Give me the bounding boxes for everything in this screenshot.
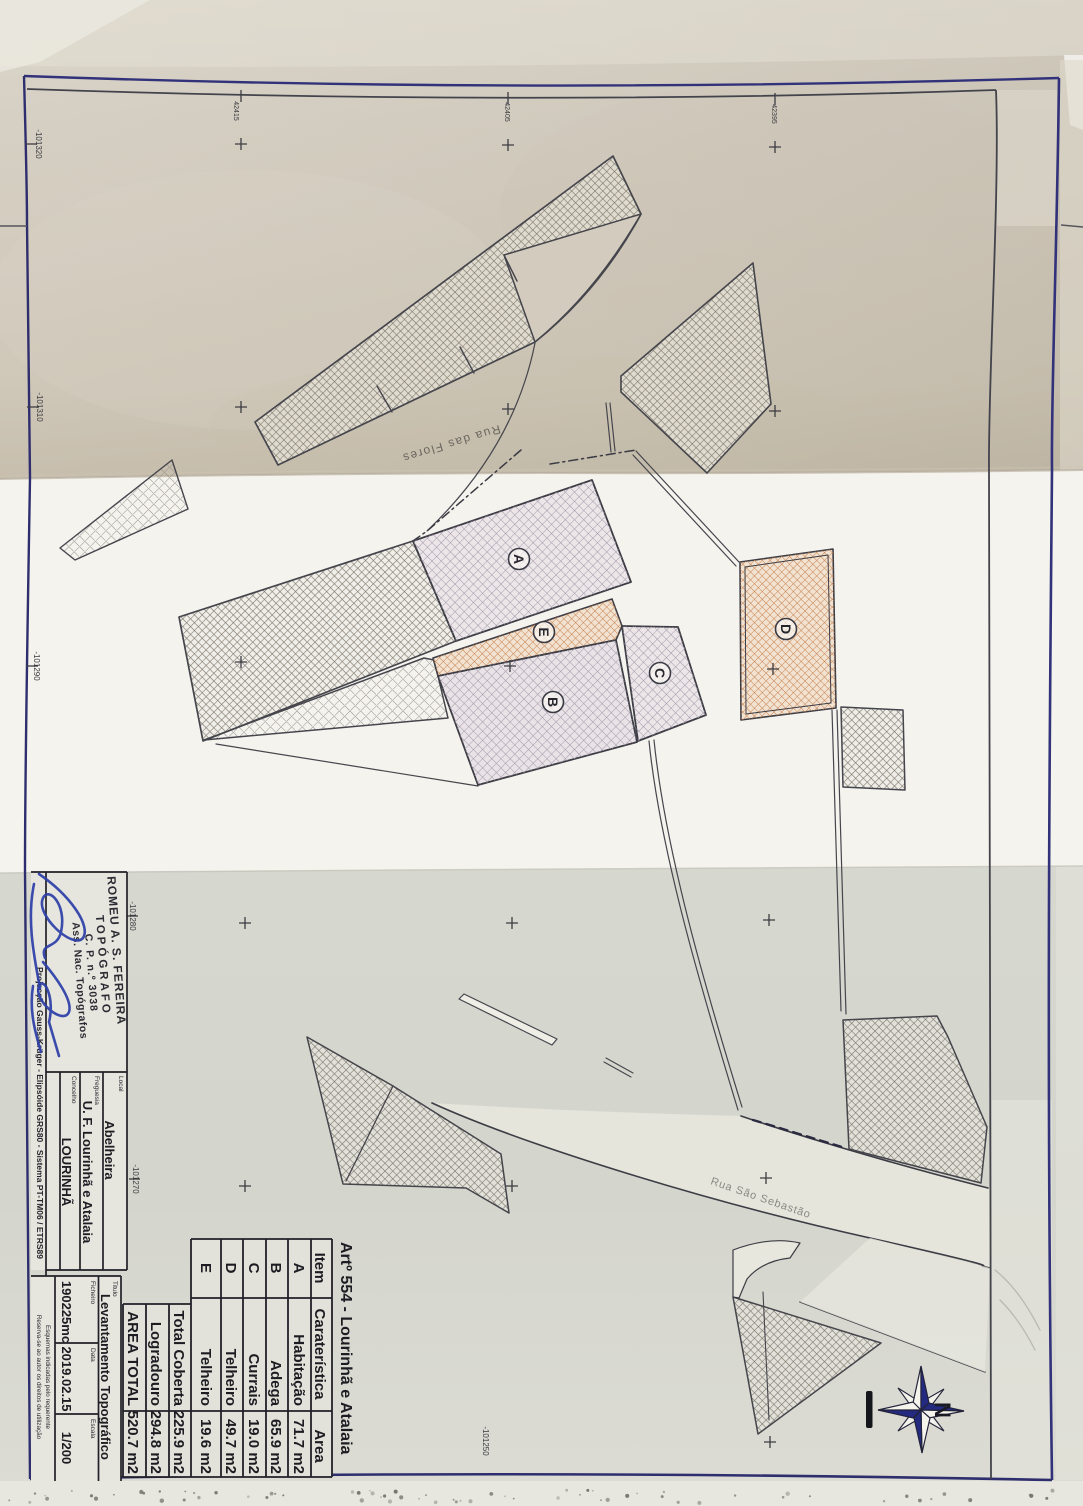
svg-text:-101270: -101270 [131, 1164, 140, 1194]
svg-text:Total Coberta: Total Coberta [170, 1310, 187, 1406]
svg-text:U. F. Lourinhã e Atalaia: U. F. Lourinhã e Atalaia [80, 1101, 95, 1244]
svg-text:49.7 m2: 49.7 m2 [222, 1419, 239, 1474]
svg-text:Area: Area [311, 1429, 328, 1463]
svg-text:Item: Item [311, 1253, 328, 1284]
svg-text:Adega: Adega [267, 1360, 284, 1407]
svg-text:Caraterística: Caraterística [311, 1309, 328, 1401]
svg-text:190225mc: 190225mc [59, 1281, 74, 1343]
svg-text:65.9 m2: 65.9 m2 [267, 1419, 284, 1474]
svg-text:42415: 42415 [232, 101, 239, 121]
svg-text:Telheiro: Telheiro [197, 1349, 214, 1406]
svg-text:-101320: -101320 [34, 129, 43, 159]
svg-text:C: C [245, 1263, 262, 1274]
svg-text:1/200: 1/200 [59, 1432, 74, 1465]
svg-text:Artº 554 - Lourinhã e Atalaia: Artº 554 - Lourinhã e Atalaia [337, 1242, 354, 1455]
svg-text:19.6 m2: 19.6 m2 [197, 1419, 214, 1474]
svg-text:Currais: Currais [245, 1353, 262, 1406]
svg-text:A: A [290, 1263, 307, 1274]
svg-text:Concelho: Concelho [70, 1076, 77, 1104]
svg-text:-101290: -101290 [32, 651, 41, 681]
svg-text:2019.02.15: 2019.02.15 [59, 1346, 74, 1411]
svg-text:-101280: -101280 [128, 901, 137, 931]
svg-text:Data: Data [89, 1348, 96, 1362]
svg-text:225.9 m2: 225.9 m2 [170, 1411, 187, 1474]
svg-text:Esquemas indicadas pelo requer: Esquemas indicadas pelo requerente [44, 1325, 51, 1429]
svg-text:42405: 42405 [503, 102, 510, 122]
svg-text:Levantamento Topográfico: Levantamento Topográfico [98, 1294, 113, 1460]
svg-text:C: C [652, 668, 668, 678]
svg-text:42395: 42395 [770, 104, 777, 124]
svg-text:E: E [197, 1263, 214, 1273]
svg-text:Telheiro: Telheiro [222, 1349, 239, 1406]
svg-text:-101250: -101250 [481, 1426, 490, 1456]
svg-text:AREA TOTAL: AREA TOTAL [124, 1311, 141, 1406]
svg-text:B: B [267, 1263, 284, 1274]
svg-text:Abelheira: Abelheira [102, 1120, 117, 1180]
svg-text:Reserva-se ao autor os direito: Reserva-se ao autor os direitos de utili… [35, 1315, 42, 1440]
svg-text:520.7 m2: 520.7 m2 [124, 1411, 141, 1474]
svg-text:N: N [930, 1402, 955, 1418]
svg-text:LOURINHÃ: LOURINHÃ [59, 1138, 74, 1207]
svg-text:B: B [545, 697, 561, 707]
svg-text:19.0 m2: 19.0 m2 [245, 1419, 262, 1474]
svg-text:-101310: -101310 [35, 392, 44, 422]
svg-text:Habitação: Habitação [290, 1334, 307, 1406]
svg-text:Logradouro: Logradouro [147, 1322, 164, 1406]
svg-text:Ficheiro: Ficheiro [89, 1281, 96, 1305]
svg-text:Projecção Gauss-Krüger - Elips: Projecção Gauss-Krüger - Elipsóide GRS80… [35, 967, 45, 1259]
svg-text:294.8 m2: 294.8 m2 [147, 1411, 164, 1474]
svg-text:Escala: Escala [89, 1419, 96, 1439]
svg-text:D: D [778, 624, 794, 634]
svg-text:A: A [511, 554, 527, 564]
svg-text:E: E [536, 627, 552, 636]
svg-text:D: D [222, 1263, 239, 1274]
svg-text:Local: Local [117, 1076, 124, 1092]
svg-text:71.7 m2: 71.7 m2 [290, 1419, 307, 1474]
